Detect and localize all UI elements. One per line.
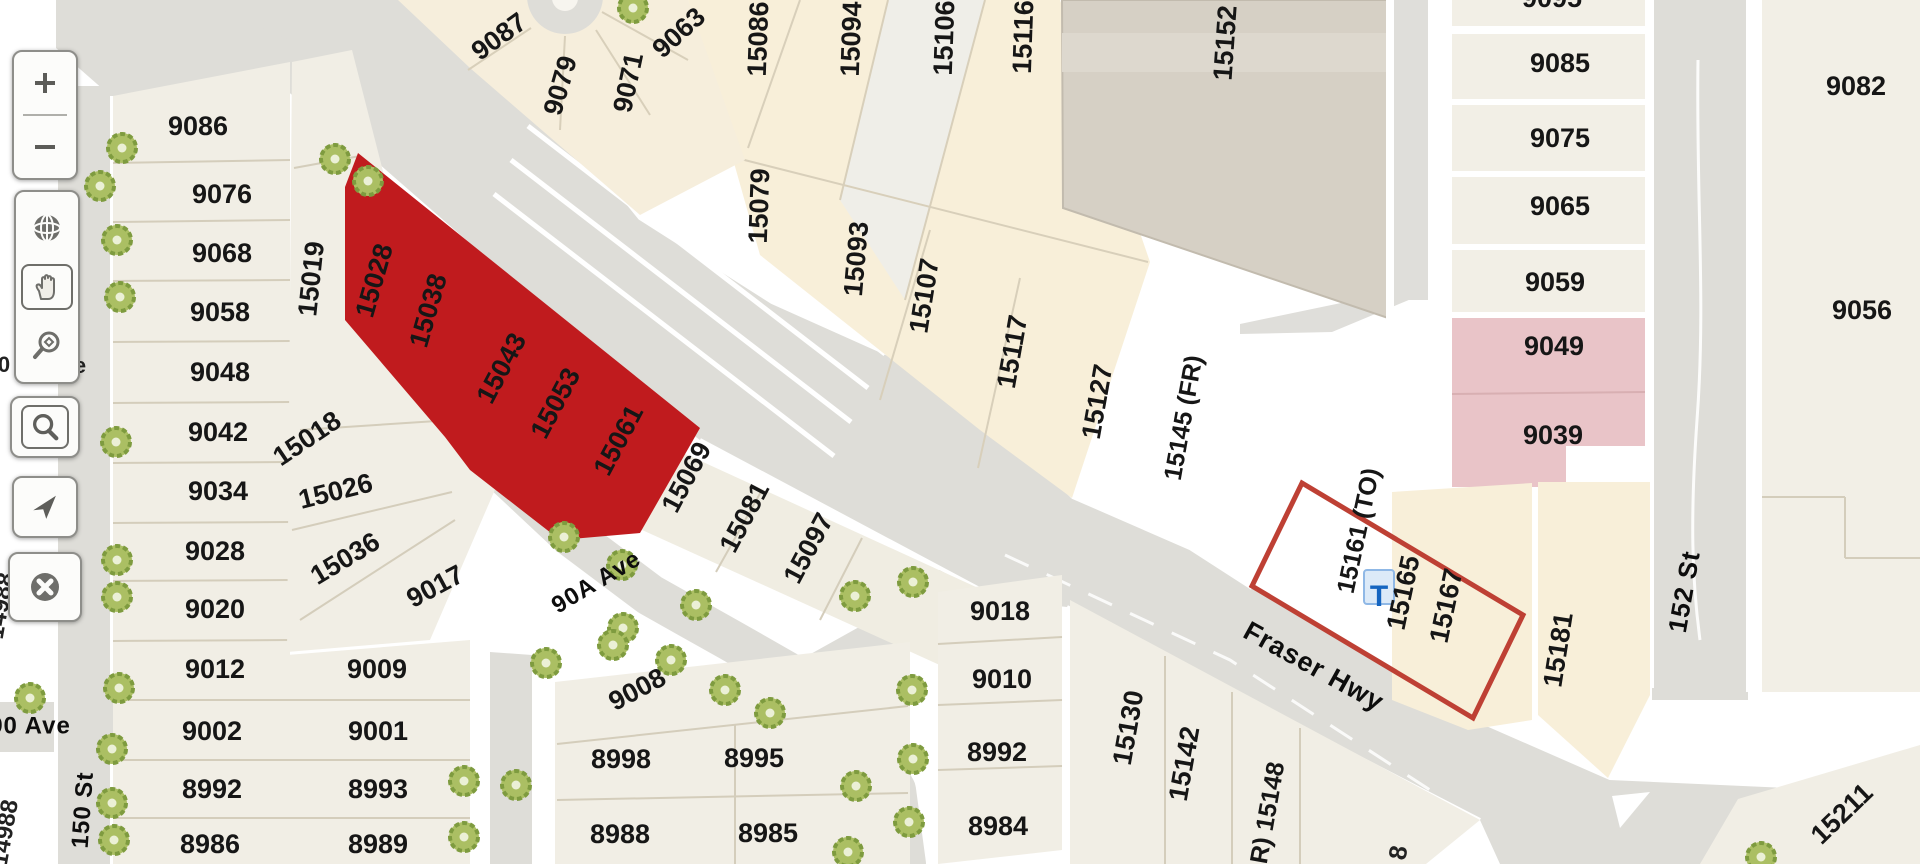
parcel-label: 15152 xyxy=(1208,4,1243,81)
tree-icon xyxy=(102,225,132,255)
tree-icon xyxy=(97,788,127,818)
tree-icon xyxy=(101,427,131,457)
parcel-label: 9042 xyxy=(188,417,248,447)
tree-icon xyxy=(681,590,711,620)
road-lane-mid xyxy=(490,652,532,864)
hand-icon xyxy=(31,271,63,303)
tree-icon xyxy=(15,683,45,713)
parcel-label: 0 xyxy=(0,352,10,377)
navigation-arrow-icon xyxy=(29,491,61,523)
block-right-column xyxy=(1452,0,1645,312)
tree-icon xyxy=(894,807,924,837)
parcel-label: 9076 xyxy=(192,179,252,209)
parcel-label: 9012 xyxy=(185,654,245,684)
parcel-label: 15145 (FR) xyxy=(1159,353,1209,482)
search-button[interactable] xyxy=(29,409,61,445)
tree-icon xyxy=(449,766,479,796)
parcel-label: 9002 xyxy=(182,716,242,746)
parcel-label: 8989 xyxy=(348,829,408,859)
tree-icon xyxy=(97,734,127,764)
parcel-label: 9068 xyxy=(192,238,252,268)
parcel-label: 9086 xyxy=(168,111,228,141)
parcel-label: 14988 xyxy=(0,798,24,864)
tree-icon xyxy=(105,282,135,312)
tree-icon xyxy=(710,675,740,705)
parcel-label: 9018 xyxy=(970,596,1030,626)
parcel-label: 15116 xyxy=(1007,0,1040,74)
zoom-out-button[interactable] xyxy=(14,130,76,164)
map-canvas[interactable]: T 90869076906890589048904290349028902090… xyxy=(0,0,1920,864)
parcel-label: 9075 xyxy=(1530,123,1590,153)
pan-button[interactable] xyxy=(31,269,63,305)
parcel-label: 9049 xyxy=(1524,331,1584,361)
tree-icon xyxy=(102,545,132,575)
parcel-label: 9082 xyxy=(1826,71,1886,101)
block-east xyxy=(1762,0,1920,692)
tool-group xyxy=(14,190,80,384)
parcel-label: 15094 xyxy=(835,1,868,77)
tree-icon xyxy=(104,673,134,703)
clear-button[interactable] xyxy=(10,566,80,608)
tree-icon xyxy=(898,567,928,597)
parcel-label: 9085 xyxy=(1530,48,1590,78)
tree-icon xyxy=(99,825,129,855)
divider xyxy=(23,114,66,116)
tree-icon xyxy=(501,770,531,800)
basemap-button[interactable] xyxy=(16,209,78,247)
locate-box xyxy=(12,476,78,538)
zoom-selection-button[interactable] xyxy=(16,327,78,365)
tree-icon xyxy=(449,822,479,852)
parcel-label: 9095 xyxy=(1522,0,1582,13)
parcel-label: 8988 xyxy=(590,819,650,849)
parcel-label: 9056 xyxy=(1832,295,1892,325)
pan-tool-selected xyxy=(21,264,73,310)
tree-icon xyxy=(549,522,579,552)
parcel-label: 9009 xyxy=(347,654,407,684)
search-box xyxy=(10,396,80,458)
parcel-label: 15106 xyxy=(928,0,961,76)
parcel-label: 8984 xyxy=(968,811,1028,841)
parcel-label: 9034 xyxy=(188,476,248,506)
tree-icon xyxy=(840,581,870,611)
tree-icon xyxy=(618,0,648,23)
tree-icon xyxy=(320,144,350,174)
tree-icon xyxy=(85,171,115,201)
parcel-label: 9028 xyxy=(185,536,245,566)
tree-icon xyxy=(102,582,132,612)
tree-icon xyxy=(897,675,927,705)
parcel-label: 9048 xyxy=(190,357,250,387)
tree-icon xyxy=(353,166,383,196)
minus-icon xyxy=(30,132,60,162)
street-label: 90 Ave xyxy=(0,712,71,739)
clear-box xyxy=(8,552,82,622)
tree-icon xyxy=(107,133,137,163)
tree-icon xyxy=(898,744,928,774)
street-label: 150 St xyxy=(67,771,99,849)
parcel-label: 15079 xyxy=(743,168,776,244)
parcel-label: 9020 xyxy=(185,594,245,624)
close-circle-icon xyxy=(26,568,64,606)
parcel-label: 9059 xyxy=(1525,267,1585,297)
map-stage: T 90869076906890589048904290349028902090… xyxy=(0,0,1920,864)
locate-button[interactable] xyxy=(14,489,76,525)
parcel-label: 8998 xyxy=(591,744,651,774)
parcel-label: 9001 xyxy=(348,716,408,746)
zoom-in-button[interactable] xyxy=(14,66,76,100)
tree-icon xyxy=(531,648,561,678)
zoom-control xyxy=(12,50,78,180)
plus-icon xyxy=(30,68,60,98)
parcel-label: 9065 xyxy=(1530,191,1590,221)
zoom-select-icon xyxy=(30,329,64,363)
tree-icon xyxy=(598,630,628,660)
parcel-label: 9058 xyxy=(190,297,250,327)
tree-icon xyxy=(841,771,871,801)
parcel-label: 8985 xyxy=(738,818,798,848)
search-icon xyxy=(29,411,61,443)
parcel-label: 8986 xyxy=(180,829,240,859)
parcel-label: 8992 xyxy=(182,774,242,804)
globe-icon xyxy=(30,211,64,245)
tree-icon xyxy=(755,698,785,728)
parcel-label: 9039 xyxy=(1523,420,1583,450)
parcel-label: 9010 xyxy=(972,664,1032,694)
parcel-label: 8995 xyxy=(724,743,784,773)
search-frame xyxy=(21,405,69,449)
parcel-label: 8993 xyxy=(348,774,408,804)
parcel-label: 15086 xyxy=(742,1,775,77)
parcel-label: 8992 xyxy=(967,737,1027,767)
road-alley xyxy=(1394,0,1428,300)
